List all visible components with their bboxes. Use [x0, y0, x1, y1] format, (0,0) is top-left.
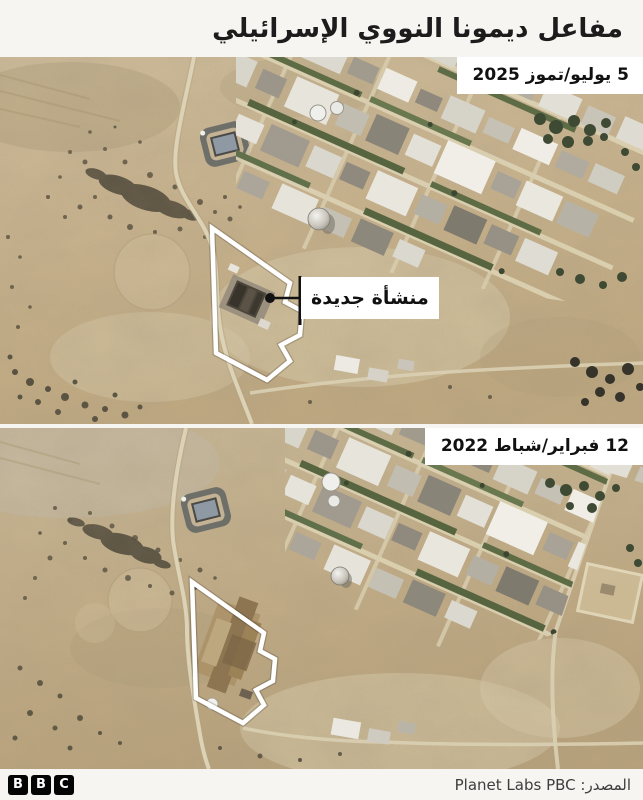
bbc-logo: B B C: [8, 775, 74, 795]
footer: B B C المصدر: Planet Labs PBC: [0, 769, 643, 800]
satellite-photo-2022: [0, 428, 643, 769]
satellite-photo-2025: [0, 57, 643, 424]
bbc-logo-letter: B: [31, 775, 51, 795]
bbc-logo-letter: B: [8, 775, 28, 795]
walled-enclosure: [578, 564, 643, 623]
page-title: مفاعل ديمونا النووي الإسرائيلي: [212, 14, 623, 44]
date-label-2025: 5 يوليو/تموز 2025: [457, 57, 643, 94]
source-credit: المصدر: Planet Labs PBC: [455, 776, 631, 794]
date-label-2022: 12 فبراير/شباط 2022: [425, 428, 643, 465]
header: مفاعل ديمونا النووي الإسرائيلي: [0, 0, 643, 57]
bbc-logo-letter: C: [54, 775, 74, 795]
satellite-panel-2022: 12 فبراير/شباط 2022: [0, 428, 643, 769]
new-facility-annotation: منشأة جديدة: [301, 277, 439, 319]
satellite-panel-2025: 5 يوليو/تموز 2025 منشأة جديدة: [0, 57, 643, 424]
